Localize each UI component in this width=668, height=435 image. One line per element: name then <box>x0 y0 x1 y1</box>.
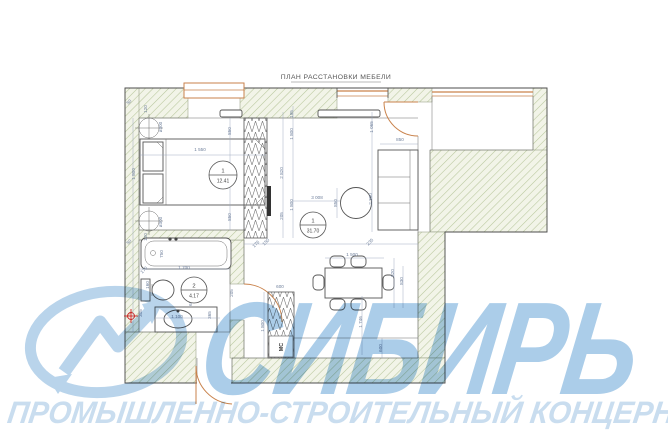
dimension-label: 850 <box>396 137 404 142</box>
entry-door-arc <box>384 102 418 136</box>
bedroom <box>135 110 271 238</box>
dimension-label: 850 <box>227 127 232 135</box>
watermark-logo <box>14 278 204 413</box>
plan-title-text: ПЛАН РАССТАНОВКИ МЕБЕЛИ <box>281 74 391 81</box>
round-table <box>341 188 372 219</box>
dimension-label: 1 800 <box>289 199 294 211</box>
dimension-label: 120 <box>143 105 148 113</box>
dimension-label: 205 <box>279 212 284 220</box>
dimension-label: 1 800 <box>131 168 136 180</box>
dimension-label: 2 820 <box>279 167 284 179</box>
entry-window <box>432 92 533 96</box>
dimension-label: 3 008 <box>311 195 323 200</box>
dimension-label: 1 500 <box>346 252 358 257</box>
radiator <box>318 110 380 117</box>
room-number: 1 <box>311 219 314 225</box>
dimension-label: 195 <box>289 110 294 118</box>
dimension-label: 120 <box>143 233 148 241</box>
dimension-label: 150 <box>261 237 270 246</box>
living-window <box>337 88 388 98</box>
logo-arrow-icon <box>64 312 150 372</box>
dimension-label: 1 550 <box>194 147 206 152</box>
living-room <box>318 110 418 230</box>
dimension-label: 850 <box>227 213 232 221</box>
logo-ellipse-icon <box>24 282 188 402</box>
dimension-label: 1 800 <box>289 128 294 140</box>
bedroom-window <box>184 83 244 98</box>
wardrobe <box>244 118 271 238</box>
windows <box>184 83 533 98</box>
dimension-label: ø300 <box>158 121 163 132</box>
dimension-label: 235 <box>365 237 374 246</box>
room-label-bedroom: 1 12.41 <box>209 161 237 189</box>
plan-title: ПЛАН РАССТАНОВКИ МЕБЕЛИ <box>281 74 391 82</box>
dimension-label: 176 <box>251 239 260 248</box>
dimension-label: 2 300 <box>368 193 373 205</box>
room-area: 12.41 <box>217 179 230 185</box>
dimension-label: 1 700 <box>178 265 190 270</box>
sofa <box>378 150 418 230</box>
room-area: 31.70 <box>307 229 320 235</box>
dimension-label: 1 065 <box>369 121 374 133</box>
watermark-tagline: ПРОМЫШЛЕННО-СТРОИТЕЛЬНЫЙ КОНЦЕРН <box>6 397 668 428</box>
dimension-label: ø300 <box>158 216 163 227</box>
radiator <box>220 110 242 117</box>
tv <box>267 186 271 216</box>
room-number: 1 <box>221 169 224 175</box>
room-label-living: 1 31.70 <box>300 212 326 238</box>
dimension-label: 750 <box>159 250 164 258</box>
chair <box>330 256 345 267</box>
chair <box>351 256 366 267</box>
floor-plan-page: ПЛАН РАССТАНОВКИ МЕБЕЛИ <box>0 0 668 435</box>
dimension-label: 850 <box>333 199 338 207</box>
